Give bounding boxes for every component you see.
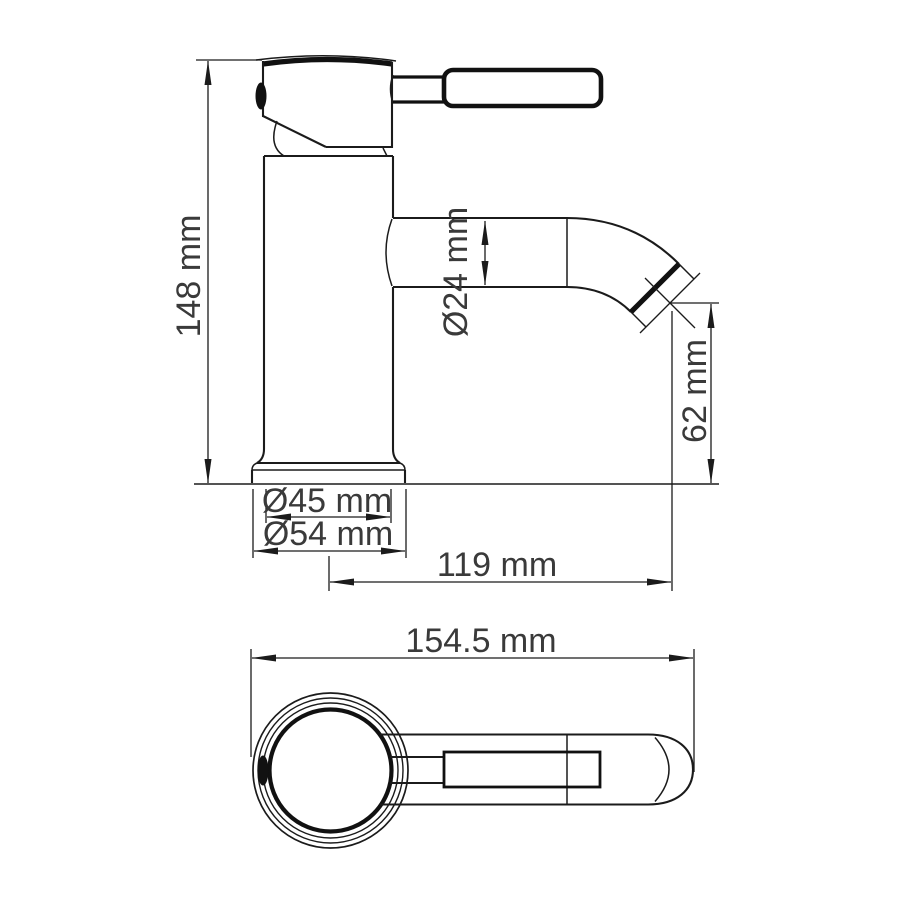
spout-diameter-label: Ø24 mm: [437, 207, 475, 337]
spout-top: [380, 735, 693, 805]
faucet-base: [252, 463, 405, 483]
overall-height-label: 148 mm: [170, 215, 208, 338]
faucet-dimension-drawing: 148 mm Ø24 mm 62 mm Ø45 mm Ø54 mm: [0, 0, 900, 900]
set-screw-dot-top: [258, 756, 269, 786]
dimension-spout-diameter: Ø24 mm: [437, 207, 485, 337]
dimension-overall-length: 154.5 mm: [251, 622, 694, 772]
side-view: 148 mm Ø24 mm 62 mm Ø45 mm Ø54 mm: [170, 56, 719, 591]
faucet-body: [257, 156, 400, 463]
outlet-height-label: 62 mm: [676, 339, 714, 443]
base-rings-top: [253, 693, 408, 848]
overall-length-label: 154.5 mm: [405, 622, 556, 660]
faucet-handle: [391, 70, 602, 106]
faucet-head: [256, 56, 397, 156]
top-view: 154.5 mm: [251, 622, 694, 848]
handle-grip: [444, 70, 601, 106]
handle-grip-top: [444, 752, 600, 787]
dimension-outlet-height: 62 mm: [670, 303, 719, 483]
dimension-overall-height: 148 mm: [170, 60, 262, 483]
base-diameter-label: Ø54 mm: [263, 515, 393, 553]
set-screw-dot: [256, 83, 267, 110]
spout-reach-label: 119 mm: [437, 546, 557, 584]
technical-drawing: 148 mm Ø24 mm 62 mm Ø45 mm Ø54 mm: [0, 0, 900, 900]
handle-top: [390, 752, 600, 787]
